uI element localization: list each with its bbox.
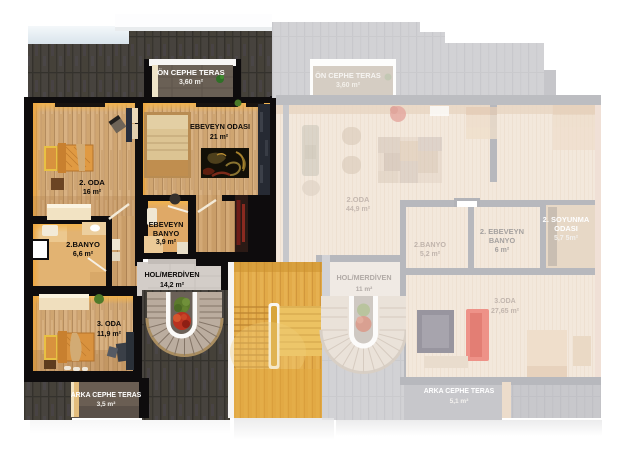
svg-text:3,60 m²: 3,60 m² bbox=[336, 82, 361, 89]
svg-text:14,2 m²: 14,2 m² bbox=[160, 282, 185, 289]
svg-text:5,7 5m²: 5,7 5m² bbox=[554, 235, 579, 242]
svg-text:2. SOYUNMA: 2. SOYUNMA bbox=[543, 215, 590, 224]
svg-text:3.ODA: 3.ODA bbox=[494, 298, 515, 305]
svg-text:BANYO: BANYO bbox=[489, 236, 516, 245]
svg-text:2.BANYO: 2.BANYO bbox=[414, 240, 446, 249]
svg-text:21 m²: 21 m² bbox=[210, 134, 229, 141]
svg-text:EBEVEYN ODASI: EBEVEYN ODASI bbox=[190, 122, 250, 131]
svg-text:27,65 m²: 27,65 m² bbox=[491, 308, 520, 315]
svg-text:3,9 m²: 3,9 m² bbox=[156, 239, 177, 246]
svg-text:ÖN CEPHE TERAS: ÖN CEPHE TERAS bbox=[315, 71, 381, 80]
svg-text:ÖN CEPHE TERAS: ÖN CEPHE TERAS bbox=[157, 68, 225, 77]
svg-text:5,1 m²: 5,1 m² bbox=[450, 398, 470, 405]
svg-text:ARKA CEPHE TERAS: ARKA CEPHE TERAS bbox=[424, 388, 495, 395]
svg-text:2. ODA: 2. ODA bbox=[79, 178, 105, 187]
svg-text:2.BANYO: 2.BANYO bbox=[66, 240, 100, 249]
svg-text:11 m²: 11 m² bbox=[356, 286, 373, 293]
svg-text:2.ODA: 2.ODA bbox=[347, 195, 371, 204]
svg-text:3. ODA: 3. ODA bbox=[97, 319, 122, 328]
svg-text:HOL/MERDİVEN: HOL/MERDİVEN bbox=[144, 270, 199, 279]
svg-text:3,60 m²: 3,60 m² bbox=[179, 79, 204, 86]
svg-text:EBEVEYN: EBEVEYN bbox=[149, 220, 184, 229]
svg-text:16 m²: 16 m² bbox=[83, 189, 102, 196]
svg-text:2. EBEVEYN: 2. EBEVEYN bbox=[480, 227, 524, 236]
svg-text:ARKA CEPHE TERAS: ARKA CEPHE TERAS bbox=[71, 392, 142, 399]
svg-text:ODASI: ODASI bbox=[554, 224, 578, 233]
svg-text:HOL/MERDİVEN: HOL/MERDİVEN bbox=[336, 273, 391, 282]
svg-text:6,6 m²: 6,6 m² bbox=[73, 251, 94, 258]
svg-text:44,9 m²: 44,9 m² bbox=[346, 206, 371, 213]
svg-text:3,5 m²: 3,5 m² bbox=[97, 401, 117, 408]
svg-text:11,9 m²: 11,9 m² bbox=[97, 330, 122, 338]
svg-text:BANYO: BANYO bbox=[153, 229, 180, 238]
svg-text:6 m²: 6 m² bbox=[495, 247, 510, 254]
svg-text:5,2 m²: 5,2 m² bbox=[420, 251, 441, 258]
